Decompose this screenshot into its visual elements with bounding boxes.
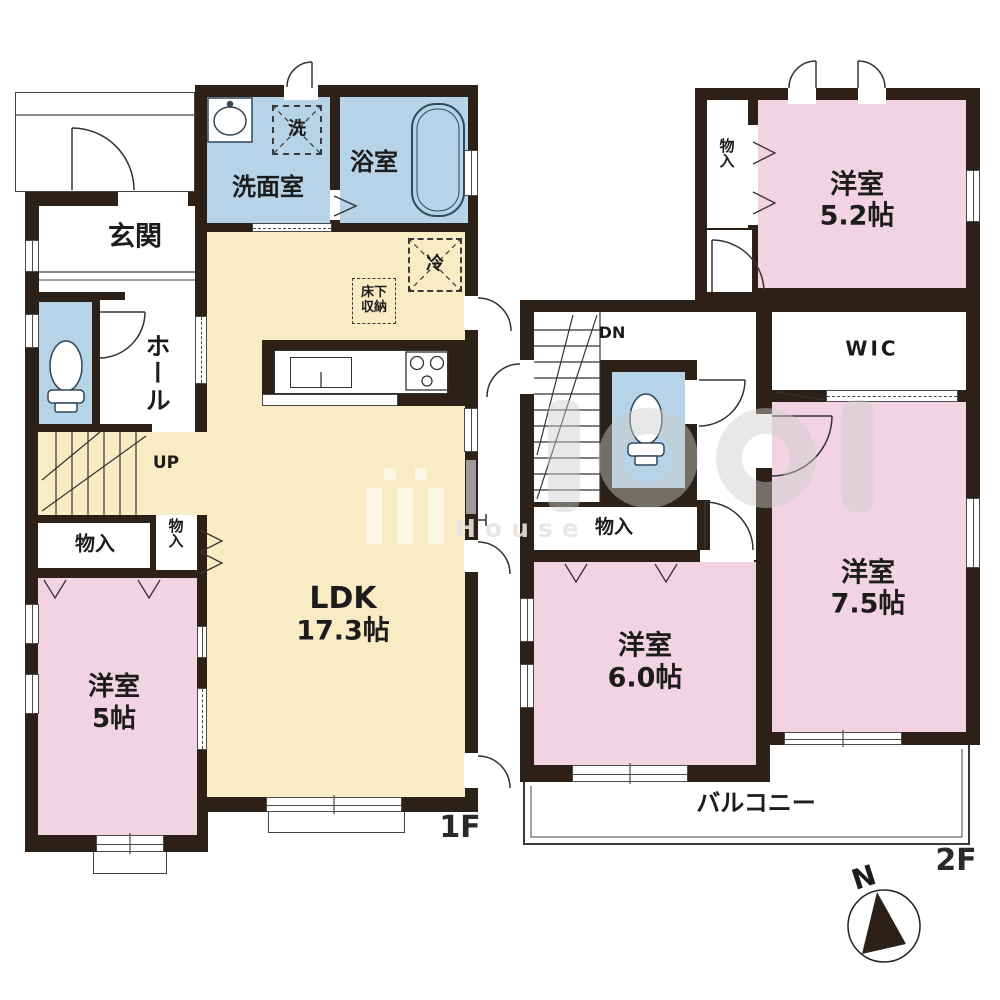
label-closet-wide-1f: 物入 [75,533,115,556]
label-bedroom52-size: 5.2帖 [820,200,895,231]
window-bath-right [464,150,478,196]
label-up: UP [153,454,179,474]
kitchen-left-stub [262,350,274,394]
window-bedroom75-bottom [784,732,902,745]
label-ldk-size: 17.3帖 [296,615,390,646]
label-floor-storage-line2: 収納 [361,300,387,315]
label-hall: ホール [138,333,174,414]
label-closet-top-2f: 物入 [717,138,738,168]
sliding-door-ldk-right [466,460,476,514]
window-bedroom60-left-2 [520,664,534,708]
kitchen-front-stub [398,394,465,406]
kitchen-counter-front [262,394,398,406]
bath-door-opening [330,190,340,220]
label-floor-1f: 1F [439,811,480,846]
kitchen-sink [290,357,352,388]
label-fridge: 冷 [426,255,444,276]
step-ldk [268,812,405,833]
window-genkan-left [25,240,39,272]
window-toilet-left [25,314,39,348]
window-ldk-right [464,408,478,452]
label-bedroom5: 洋室 [88,673,140,703]
bedroom52-top-windows [789,61,885,88]
threshold-52-window-1 [788,88,816,104]
label-bedroom60: 洋室 [618,630,672,661]
door-opening-ldk-right-2 [464,540,478,572]
label-balcony: バルコニー [696,790,816,818]
floorplan-canvas: 玄関 ホール 洗面室 浴室 洗 冷 床下 収納 LDK 17.3帖 UP 物入 … [0,0,1000,1000]
label-dn: DN [599,324,626,342]
stairs-2f [534,312,600,502]
window-bedroom5-ldk [197,626,207,658]
stair-corridor-1f [38,432,207,515]
room-toilet-1f [39,302,92,424]
kitchen-right-stub [448,350,465,394]
door-opening-toilet-2f [685,380,697,424]
label-bedroom52: 洋室 [830,169,884,200]
window-bedroom5-left-1 [25,604,39,644]
window-bedroom60-bottom [572,765,688,782]
label-washer: 洗 [288,120,306,141]
washroom-top-door-threshold [284,85,318,100]
label-wic: WIC [845,338,898,361]
label-genkan: 玄関 [108,221,162,252]
label-bedroom75-size: 7.5帖 [831,588,906,619]
nook-2f [707,230,752,292]
closet-top-opening [748,125,758,225]
label-bathroom: 浴室 [350,149,398,177]
genkan-door-threshold [118,192,188,206]
compass-icon [848,890,920,962]
ldk-right-doors [476,298,511,788]
stairs-2f-exterior-door [487,364,520,397]
label-bedroom5-size: 5帖 [92,705,136,735]
door-opening-stairs-left [520,360,534,394]
window-bedroom5-bottom [96,835,164,852]
window-bedroom5-left-2 [25,674,39,714]
label-bedroom60-size: 6.0帖 [608,662,683,693]
sliding-bedroom5-ldk [197,688,207,750]
window-ldk-bottom [266,797,402,812]
door-opening-ldk-right-3 [464,753,478,788]
sliding-hall-ldk [195,316,207,384]
label-closet-mid-2f: 物入 [595,517,633,539]
porch [15,92,195,192]
genkan-hall-opening [125,292,195,300]
label-floor-2f: 2F [935,844,976,879]
window-bedroom60-left-1 [520,598,534,642]
label-washroom: 洗面室 [232,174,304,202]
label-floor-storage: 床下 収納 [361,286,387,316]
sliding-washroom-ldk [252,223,332,232]
wic-hanger-band [826,390,958,402]
room-toilet-2f [612,372,685,488]
door-opening-ldk-right-1 [464,296,478,330]
door-opening-bedroom60 [700,550,754,562]
kitchen-back-wall [262,340,465,350]
label-ldk: LDK [309,582,376,617]
window-bedroom52-right [966,170,980,222]
room-ldk [207,232,465,797]
threshold-52-window-2 [858,88,886,104]
step-bedroom5 [93,852,167,874]
window-bedroom75-right [966,498,980,568]
door-opening-bedroom75 [756,414,772,468]
label-compass-north: N [848,859,880,897]
label-bedroom75: 洋室 [841,557,895,588]
label-floor-storage-line1: 床下 [361,285,387,300]
label-closet-narrow-1f: 物入 [166,518,187,548]
hall-corridor-opening [152,424,195,432]
